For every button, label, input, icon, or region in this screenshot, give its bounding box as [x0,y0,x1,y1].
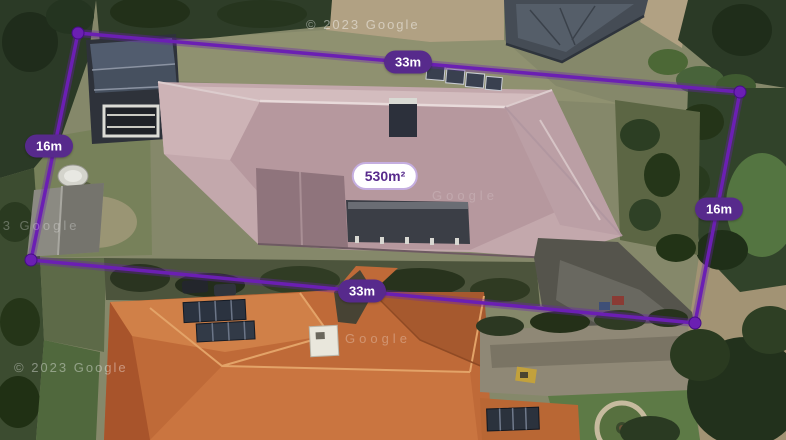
boundary-vertex-handle[interactable] [689,317,701,329]
measurement-label-bottom: 33m [338,280,386,303]
satellite-map-canvas[interactable]: © 2023 Google 2023 Google Google Google … [0,0,786,440]
boundary-vertex-handle[interactable] [734,86,746,98]
measurement-label-right: 16m [695,198,743,221]
measurement-label-left: 16m [25,135,73,158]
boundary-vertex-handle[interactable] [25,254,37,266]
area-label: 530m² [352,162,418,190]
measurement-label-top: 33m [384,51,432,74]
boundary-vertex-handle[interactable] [72,27,84,39]
